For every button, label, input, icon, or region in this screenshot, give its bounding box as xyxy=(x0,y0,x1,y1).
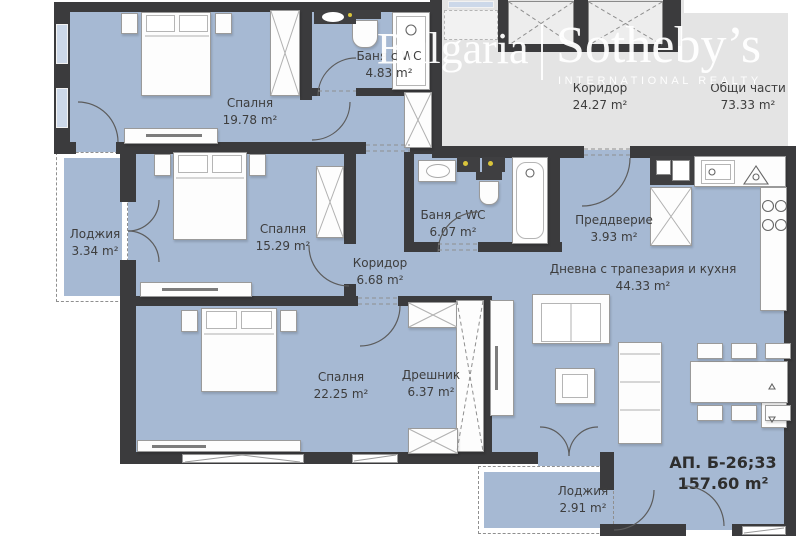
watermark-divider xyxy=(541,24,543,80)
room-area: 3.34 m² xyxy=(70,243,121,260)
dining-table xyxy=(690,361,788,403)
wall xyxy=(54,142,76,154)
wall xyxy=(54,2,442,12)
watermark-region: Bulgaria xyxy=(377,27,529,71)
room-name: Лоджия xyxy=(70,226,121,243)
wall xyxy=(600,524,686,536)
room-name: Коридор xyxy=(353,255,408,272)
room-name: Лоджия xyxy=(558,483,609,500)
nightstand xyxy=(249,154,266,176)
kitchen-counter xyxy=(760,187,787,311)
faucet-icon xyxy=(463,161,468,166)
pillow xyxy=(146,15,175,32)
wall xyxy=(344,152,356,244)
room-label-living: Дневна с трапезария и кухня 44.33 m² xyxy=(550,261,737,295)
window xyxy=(56,88,68,128)
window xyxy=(352,454,398,463)
room-name: Дневна с трапезария и кухня xyxy=(550,261,737,278)
chair xyxy=(765,405,791,421)
tv-icon xyxy=(146,134,202,137)
tv-board xyxy=(490,300,514,416)
room-name: Спалня xyxy=(223,95,278,112)
tv-icon xyxy=(152,445,206,448)
wardrobe xyxy=(404,92,432,148)
room-label-bath-2: Баня с WC 6.07 m² xyxy=(420,207,485,241)
wall xyxy=(120,142,136,202)
wall xyxy=(128,296,358,306)
chair xyxy=(731,405,757,421)
sink xyxy=(322,12,344,22)
room-area: 19.78 m² xyxy=(223,112,278,129)
room-area: 44.33 m² xyxy=(550,278,737,295)
nightstand xyxy=(280,310,297,332)
nightstand xyxy=(154,154,171,176)
room-area: 73.33 m² xyxy=(710,97,786,114)
room-area: 6.68 m² xyxy=(353,272,408,289)
floor-plan: Спалня 19.78 m² Баня с WC 4.83 m² Коридо… xyxy=(0,0,800,540)
room-area: 6.37 m² xyxy=(402,384,460,401)
pillow xyxy=(178,155,208,173)
nightstand xyxy=(181,310,198,332)
pillow xyxy=(212,155,242,173)
window xyxy=(56,24,68,64)
toilet xyxy=(479,181,499,205)
room-label-closet: Дрешник 6.37 m² xyxy=(402,367,460,401)
common-area-notch xyxy=(684,0,788,13)
room-area: 3.93 m² xyxy=(575,229,653,246)
pillow xyxy=(179,15,208,32)
watermark-brand: Sotheby’s xyxy=(556,20,761,72)
room-label-corridor: Коридор 6.68 m² xyxy=(353,255,408,289)
faucet-icon xyxy=(348,13,352,17)
wall xyxy=(312,88,320,96)
room-name: Преддверие xyxy=(575,212,653,229)
washer xyxy=(482,157,505,172)
toilet xyxy=(352,20,378,48)
wall xyxy=(404,152,414,248)
toilet-tank xyxy=(476,172,502,180)
room-area: 24.27 m² xyxy=(573,97,628,114)
room-label-bedroom-2: Спалня 15.29 m² xyxy=(256,221,311,255)
room-label-entry: Преддверие 3.93 m² xyxy=(575,212,653,246)
room-name: Дрешник xyxy=(402,367,460,384)
room-label-bedroom-1: Спалня 19.78 m² xyxy=(223,95,278,129)
room-label-bedroom-3: Спалня 22.25 m² xyxy=(314,369,369,403)
nightstand xyxy=(121,13,138,34)
wall xyxy=(404,242,440,252)
pillow xyxy=(206,311,237,329)
nightstand xyxy=(215,13,232,34)
wardrobe xyxy=(408,428,458,454)
wardrobe xyxy=(408,302,458,328)
chair xyxy=(765,343,791,359)
sofa xyxy=(618,342,662,444)
chair xyxy=(731,343,757,359)
apartment-total-area: 157.60 m² xyxy=(669,473,776,494)
window xyxy=(182,454,304,463)
apartment-label: АП. Б-26;33 157.60 m² xyxy=(669,452,776,494)
chair xyxy=(697,343,723,359)
room-label-loggia-left: Лоджия 3.34 m² xyxy=(70,226,121,260)
wardrobe xyxy=(316,166,344,238)
pillow xyxy=(241,311,272,329)
tv-icon xyxy=(495,346,498,390)
wardrobe xyxy=(456,300,484,452)
french-door-opening xyxy=(538,452,600,466)
room-name: Спалня xyxy=(256,221,311,238)
bathtub-basin xyxy=(516,162,544,239)
wall xyxy=(548,152,560,252)
apartment-id: АП. Б-26;33 xyxy=(669,452,776,473)
watermark-tagline: INTERNATIONAL REALTY xyxy=(558,76,762,87)
room-area: 6.07 m² xyxy=(420,224,485,241)
faucet-icon xyxy=(488,161,493,166)
window xyxy=(448,1,494,8)
wardrobe xyxy=(270,10,300,96)
armchair-cushion xyxy=(562,374,588,398)
wall xyxy=(120,260,136,464)
room-area: 22.25 m² xyxy=(314,386,369,403)
appliance-icon xyxy=(672,160,690,181)
tv-icon xyxy=(162,288,218,291)
sink xyxy=(426,164,450,178)
window xyxy=(742,526,786,535)
room-name: Спалня xyxy=(314,369,369,386)
room-name: Баня с WC xyxy=(420,207,485,224)
room-label-loggia-bottom: Лоджия 2.91 m² xyxy=(558,483,609,517)
chair xyxy=(697,405,723,421)
wardrobe xyxy=(650,187,692,246)
wall xyxy=(432,146,584,158)
sofa-cushions xyxy=(541,303,601,342)
wall xyxy=(300,8,312,100)
washer xyxy=(457,157,480,172)
appliance-icon xyxy=(656,160,671,175)
room-area: 15.29 m² xyxy=(256,238,311,255)
room-area: 2.91 m² xyxy=(558,500,609,517)
kitchen-sink-basin xyxy=(705,164,731,180)
